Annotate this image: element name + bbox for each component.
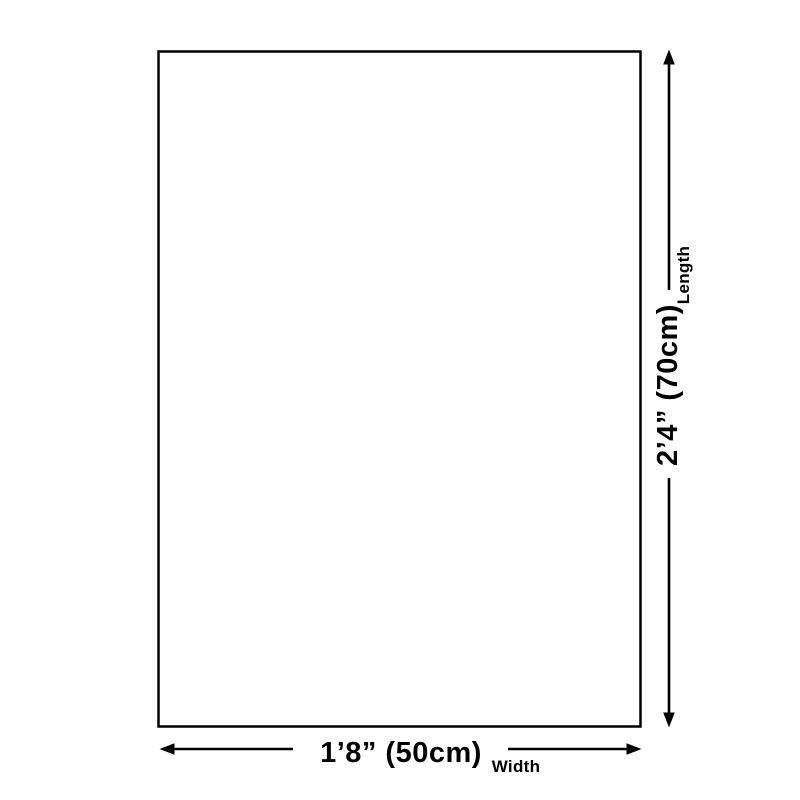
width-value: 1’8” (50cm) (320, 737, 482, 769)
dimension-diagram-canvas: 2’4” (70cm) Length 1’8” (50cm) Width (0, 0, 800, 800)
length-dimension: 2’4” (70cm) Length (652, 50, 693, 728)
product-dimension-diagram: 2’4” (70cm) Length 1’8” (50cm) Width (0, 0, 800, 800)
width-label: Width (492, 757, 541, 776)
length-label: Length (674, 246, 693, 304)
arrow-right-icon (627, 743, 642, 755)
arrow-left-icon (160, 743, 175, 755)
length-value: 2’4” (70cm) (652, 304, 684, 466)
product-outline-rect (159, 52, 641, 727)
width-dimension: 1’8” (50cm) Width (160, 737, 642, 776)
arrow-up-icon (663, 50, 675, 65)
arrow-down-icon (663, 713, 675, 728)
